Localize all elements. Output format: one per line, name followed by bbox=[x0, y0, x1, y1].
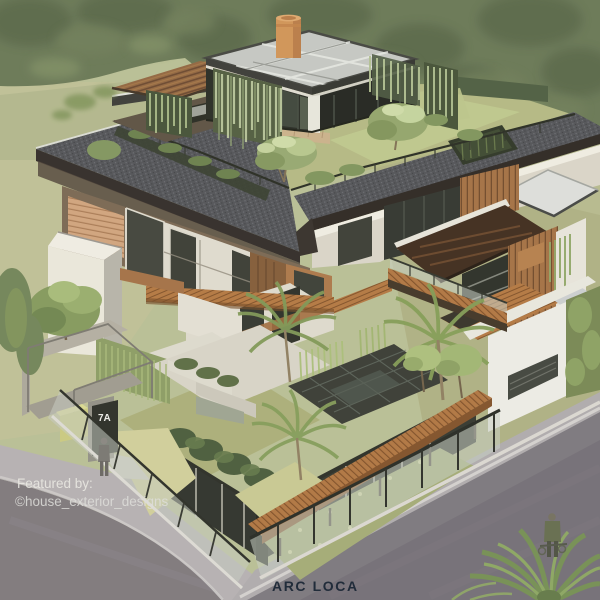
svg-text:Featured by:: Featured by: bbox=[17, 476, 93, 491]
svg-text:©house_exterior_designs: ©house_exterior_designs bbox=[15, 494, 169, 509]
svg-text:ARC LOCA: ARC LOCA bbox=[272, 578, 359, 594]
